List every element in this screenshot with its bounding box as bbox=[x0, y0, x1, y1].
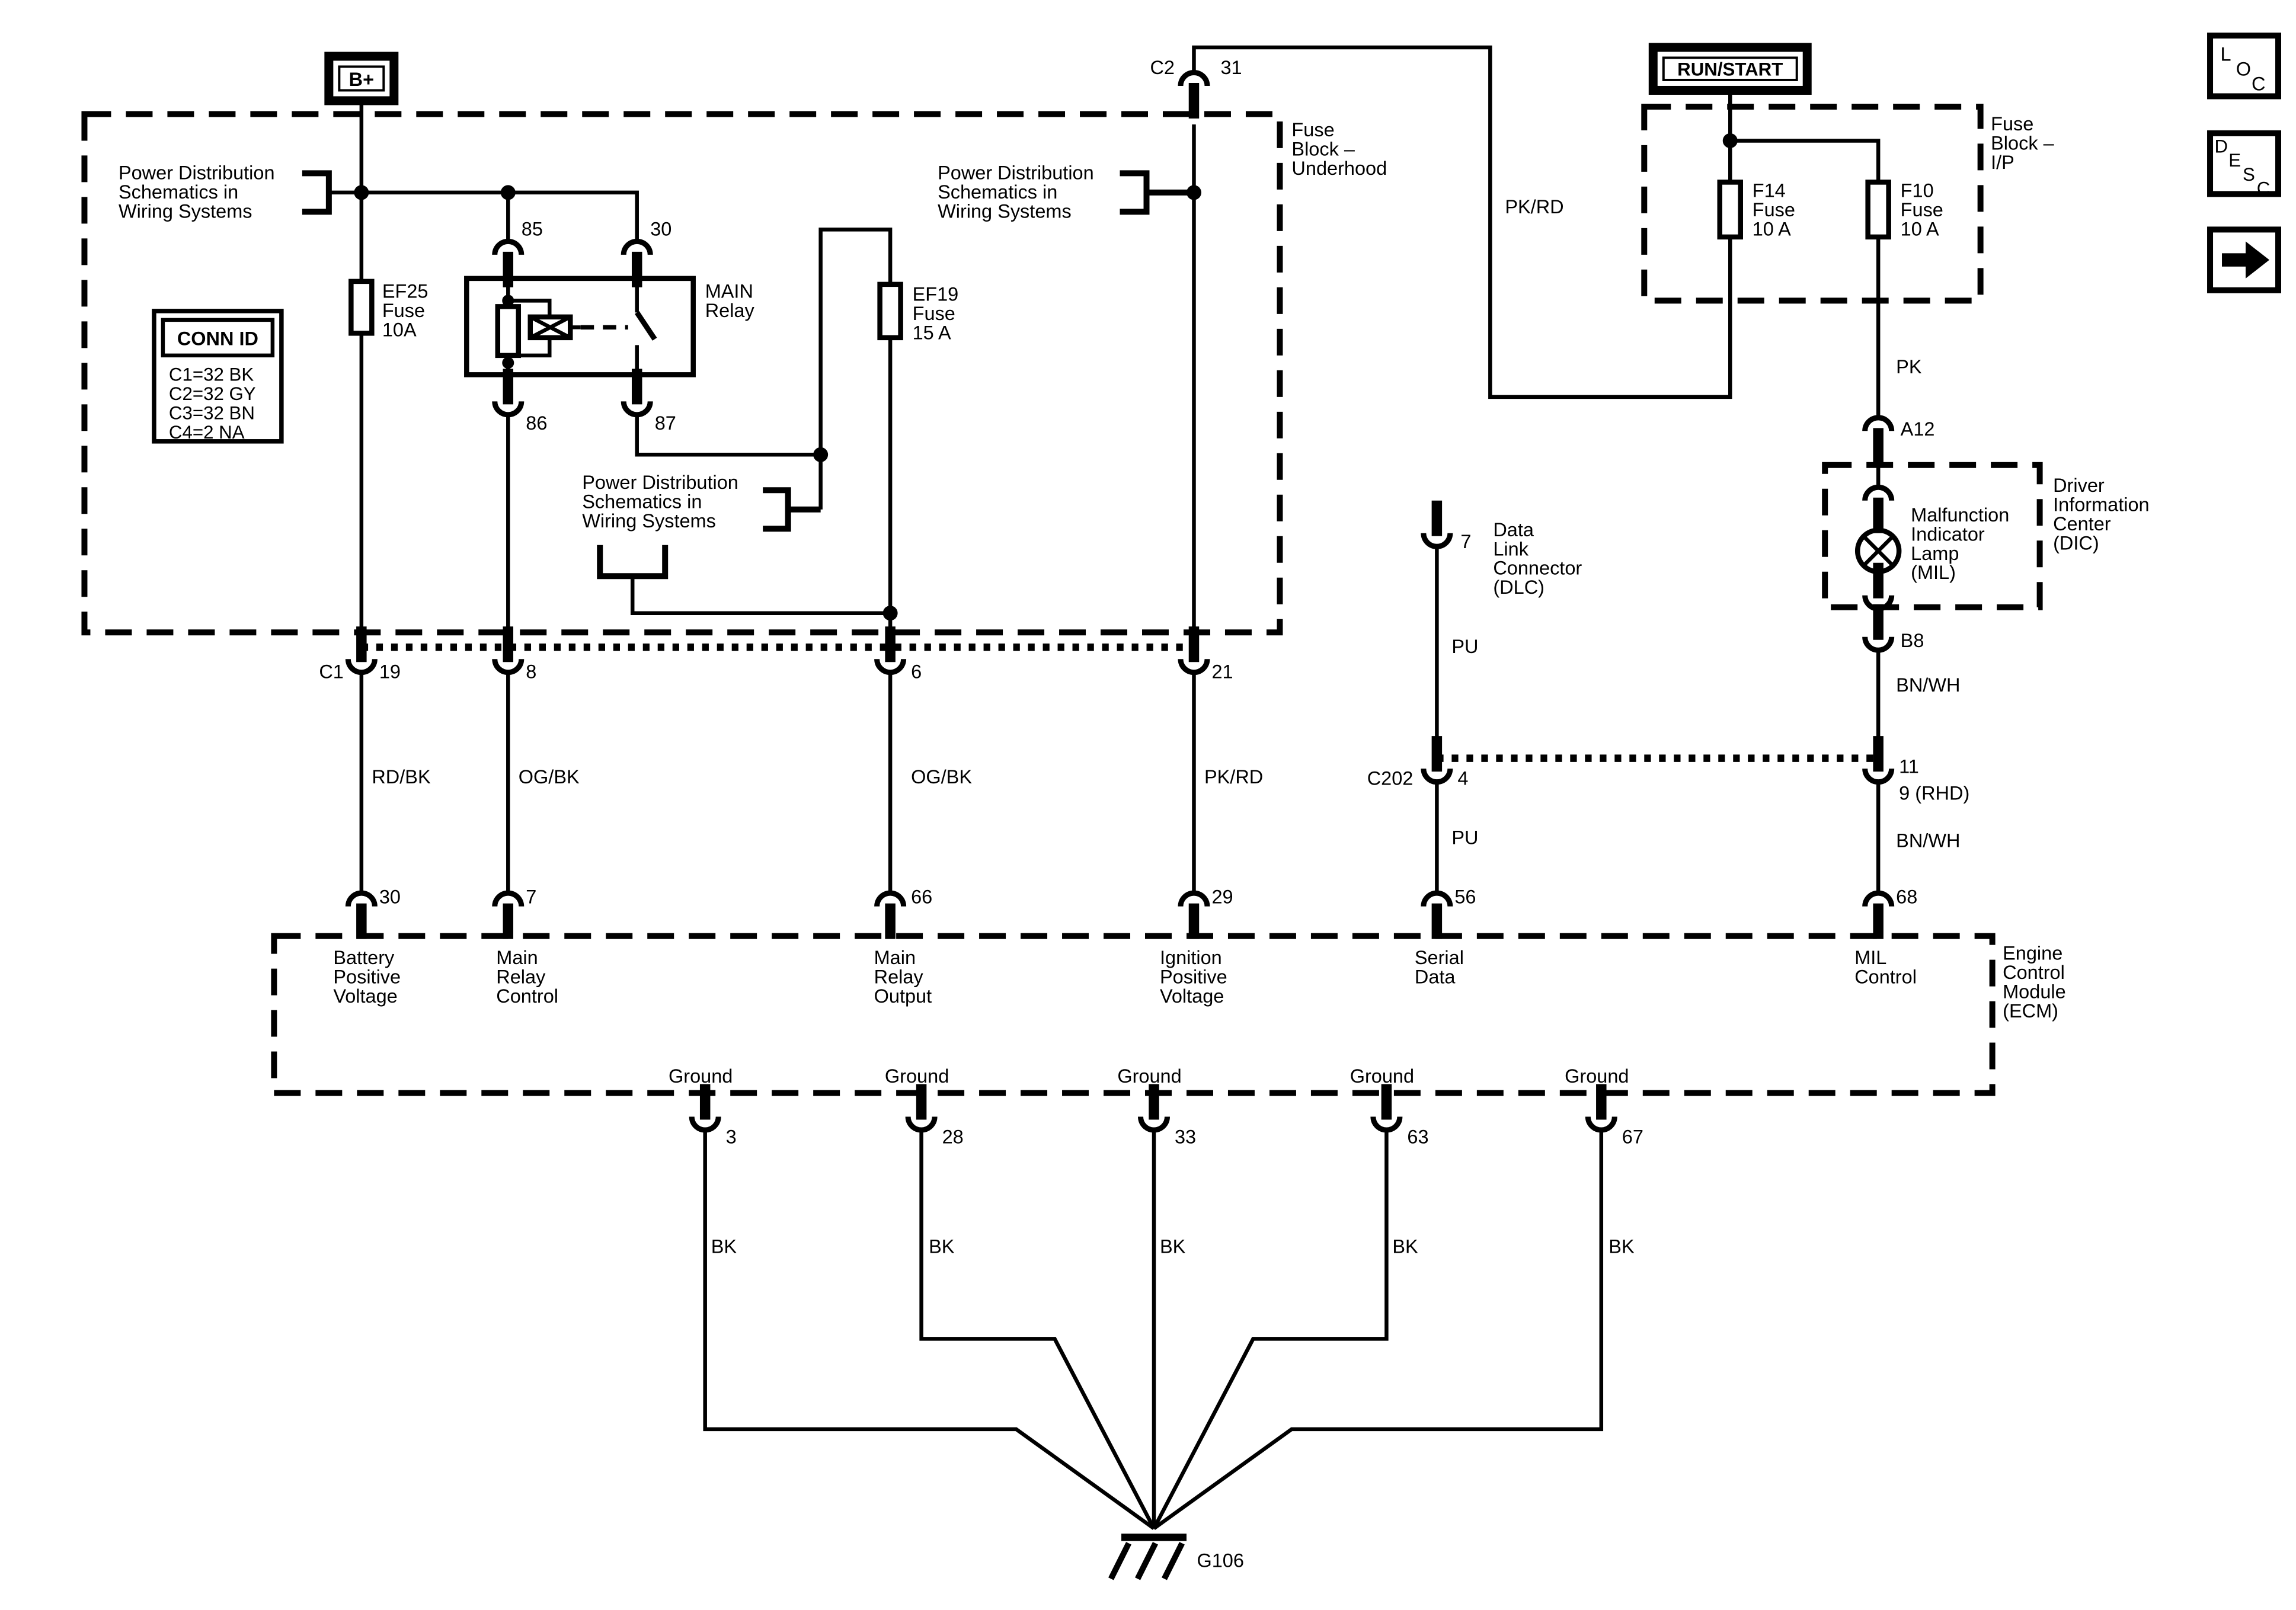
wire-color-pk: PK bbox=[1896, 356, 1922, 377]
ecm-label: EngineControlModule(ECM) bbox=[2003, 943, 2066, 1022]
wire-color-bk: BK bbox=[929, 1235, 955, 1257]
wire-color-og-bk: OG/BK bbox=[519, 766, 580, 788]
power-dist-note-left: Power DistributionSchematics inWiring Sy… bbox=[119, 162, 275, 222]
c2-connector-label: C2 bbox=[1150, 57, 1175, 78]
bracket-power-dist-down bbox=[600, 545, 665, 576]
c202-connector-label: C202 bbox=[1367, 768, 1414, 789]
dic-pin-b8 bbox=[1865, 604, 1892, 650]
run-start-terminal: RUN/START bbox=[1653, 47, 1807, 90]
wire-color-og-bk: OG/BK bbox=[911, 766, 972, 788]
ecm-pin-30 bbox=[348, 893, 375, 939]
wire-f10-branch bbox=[1730, 140, 1878, 182]
wiring-diagram: B+ RUN/START CONN ID C1=32 BK C2=32 GY C… bbox=[0, 0, 2296, 1610]
c1-pin-6-label: 6 bbox=[911, 661, 922, 683]
main-relay bbox=[466, 279, 693, 375]
labels: Power DistributionSchematics inWiring Sy… bbox=[119, 57, 2150, 1571]
mil-label: MalfunctionIndicatorLamp(MIL) bbox=[1911, 504, 2009, 583]
ecm-pin-number: 66 bbox=[911, 886, 932, 908]
ground-label: Ground bbox=[1117, 1065, 1181, 1087]
wire-color-pu: PU bbox=[1451, 636, 1478, 657]
ground-label: Ground bbox=[885, 1065, 949, 1087]
ground-pin-number: 67 bbox=[1622, 1126, 1643, 1148]
dlc-label: DataLinkConnector(DLC) bbox=[1493, 519, 1582, 598]
wire-color-pk-rd: PK/RD bbox=[1204, 766, 1263, 788]
relay-pin-85-label: 85 bbox=[522, 218, 543, 239]
run-start-label: RUN/START bbox=[1677, 59, 1783, 79]
main-relay-label: MAINRelay bbox=[705, 280, 755, 321]
wire-ground-28 bbox=[922, 1130, 1154, 1528]
fuse-block-underhood-label: FuseBlock –Underhood bbox=[1291, 119, 1387, 179]
ecm-pin-7 bbox=[495, 893, 522, 939]
c1-connector-label: C1 bbox=[319, 661, 344, 683]
c202-pin-11-label: 11 bbox=[1899, 756, 1919, 777]
ground-label: Ground bbox=[669, 1065, 733, 1087]
ecm-pin-function: IgnitionPositiveVoltage bbox=[1160, 947, 1227, 1007]
c1-pin-19-label: 19 bbox=[379, 661, 401, 683]
conn-id-row: C2=32 GY bbox=[169, 383, 256, 404]
c2-pin-31-label: 31 bbox=[1220, 57, 1242, 78]
ecm-pin-number: 68 bbox=[1896, 886, 1917, 908]
f10-fuse bbox=[1868, 182, 1889, 236]
dic-pin-a12 bbox=[1865, 418, 1892, 463]
ef19-fuse-label: EF19Fuse15 A bbox=[913, 283, 959, 343]
ecm-pin-number: 30 bbox=[379, 886, 401, 908]
schematic-page: B+ RUN/START CONN ID C1=32 BK C2=32 GY C… bbox=[0, 0, 2296, 1610]
conn-id-row: C4=2 NA bbox=[169, 422, 245, 443]
b-plus-terminal: B+ bbox=[329, 56, 394, 101]
dlc-pin-7 bbox=[1424, 501, 1450, 546]
fuse-block-ip-label: FuseBlock –I/P bbox=[1991, 113, 2054, 173]
ecm-pin-number: 29 bbox=[1211, 886, 1233, 908]
forward-button[interactable] bbox=[2210, 229, 2278, 290]
ef25-fuse-label: EF25Fuse10A bbox=[382, 280, 428, 340]
wire-color-bk: BK bbox=[711, 1235, 737, 1257]
c202-pin-4-label: 4 bbox=[1457, 768, 1468, 789]
relay-pin-30-label: 30 bbox=[650, 218, 671, 239]
c202-pin-4 bbox=[1424, 736, 1450, 782]
ecm-pin-68 bbox=[1865, 893, 1892, 939]
ground-pin-number: 33 bbox=[1175, 1126, 1196, 1148]
c202-pin-9-rhd-label: 9 (RHD) bbox=[1899, 783, 1969, 804]
wire-ground-63 bbox=[1154, 1130, 1386, 1528]
ecm-pin-function: BatteryPositiveVoltage bbox=[333, 947, 401, 1007]
power-dist-note-right: Power DistributionSchematics inWiring Sy… bbox=[938, 162, 1094, 222]
ground-pin-number: 63 bbox=[1407, 1126, 1428, 1148]
wire-color-bn-wh: BN/WH bbox=[1896, 830, 1960, 852]
dlc-pin-7-label: 7 bbox=[1460, 531, 1471, 552]
bracket-power-dist-right bbox=[1120, 173, 1194, 212]
wire-color-bk: BK bbox=[1609, 1235, 1635, 1257]
conn-id-row: C3=32 BN bbox=[169, 402, 255, 423]
wire-ground-3 bbox=[705, 1130, 1154, 1528]
wire-power-rail bbox=[329, 193, 637, 241]
wire-color-pk-rd-main: PK/RD bbox=[1505, 196, 1563, 217]
wire-color-bn-wh: BN/WH bbox=[1896, 674, 1960, 696]
f14-fuse-label: F14Fuse10 A bbox=[1753, 180, 1795, 239]
c1-pin-21-label: 21 bbox=[1211, 661, 1233, 683]
g106-label: G106 bbox=[1197, 1550, 1243, 1571]
toolbar: LOC DESC bbox=[2210, 36, 2278, 290]
power-dist-note-center: Power DistributionSchematics inWiring Sy… bbox=[582, 472, 738, 532]
conn-id-title: CONN ID bbox=[177, 328, 258, 349]
ecm-pin-function: MainRelayControl bbox=[496, 947, 558, 1007]
f14-fuse bbox=[1720, 182, 1741, 236]
bracket-power-dist-center bbox=[763, 490, 820, 529]
ecm-pin-number: 56 bbox=[1454, 886, 1476, 908]
bracket-power-dist-left bbox=[302, 173, 329, 212]
ecm-pin-number: 7 bbox=[526, 886, 536, 908]
ground-symbol-icon bbox=[1111, 1537, 1187, 1579]
ef25-fuse bbox=[351, 281, 372, 333]
c1-pin-8-label: 8 bbox=[526, 661, 536, 683]
relay-coil-resistor bbox=[498, 306, 519, 355]
b-plus-label: B+ bbox=[349, 69, 374, 90]
wire-color-bk: BK bbox=[1160, 1235, 1186, 1257]
ecm-pin-29 bbox=[1181, 893, 1207, 939]
wire-color-pu: PU bbox=[1451, 827, 1478, 849]
wire-power-dist-tap bbox=[632, 576, 890, 613]
ecm-pin-56 bbox=[1424, 893, 1450, 939]
wire-color-bk: BK bbox=[1392, 1235, 1418, 1257]
ground-label: Ground bbox=[1350, 1065, 1414, 1087]
relay-pin-87-label: 87 bbox=[655, 412, 676, 434]
connector-pins bbox=[348, 72, 1891, 1130]
desc-button[interactable]: DESC bbox=[2210, 133, 2278, 199]
wire-color-rd-bk: RD/BK bbox=[372, 766, 431, 788]
dic-pin-a12-label: A12 bbox=[1901, 418, 1935, 440]
ecm-pin-66 bbox=[877, 893, 904, 939]
ground-pin-number: 3 bbox=[726, 1126, 737, 1148]
ground-pin-number: 28 bbox=[942, 1126, 964, 1148]
ecm-pin-function: MILControl bbox=[1854, 947, 1917, 987]
conn-id-row: C1=32 BK bbox=[169, 364, 254, 385]
wire-pk-rd-run bbox=[1194, 47, 1730, 397]
loc-button[interactable]: LOC bbox=[2210, 36, 2278, 96]
ecm-pin-function: SerialData bbox=[1415, 947, 1464, 987]
wire-ground-67 bbox=[1154, 1130, 1601, 1528]
reference-brackets bbox=[302, 173, 1194, 576]
dic-label: DriverInformationCenter(DIC) bbox=[2053, 475, 2150, 553]
f10-fuse-label: F10Fuse10 A bbox=[1901, 180, 1943, 239]
ef19-fuse bbox=[880, 284, 901, 338]
ecm-pin-function: MainRelayOutput bbox=[874, 947, 932, 1007]
dic-pin-b8-label: B8 bbox=[1901, 630, 1924, 651]
relay-pin-86-label: 86 bbox=[526, 412, 547, 434]
conn-id-table: CONN ID C1=32 BK C2=32 GY C3=32 BN C4=2 … bbox=[154, 311, 282, 443]
ground-label: Ground bbox=[1565, 1065, 1629, 1087]
